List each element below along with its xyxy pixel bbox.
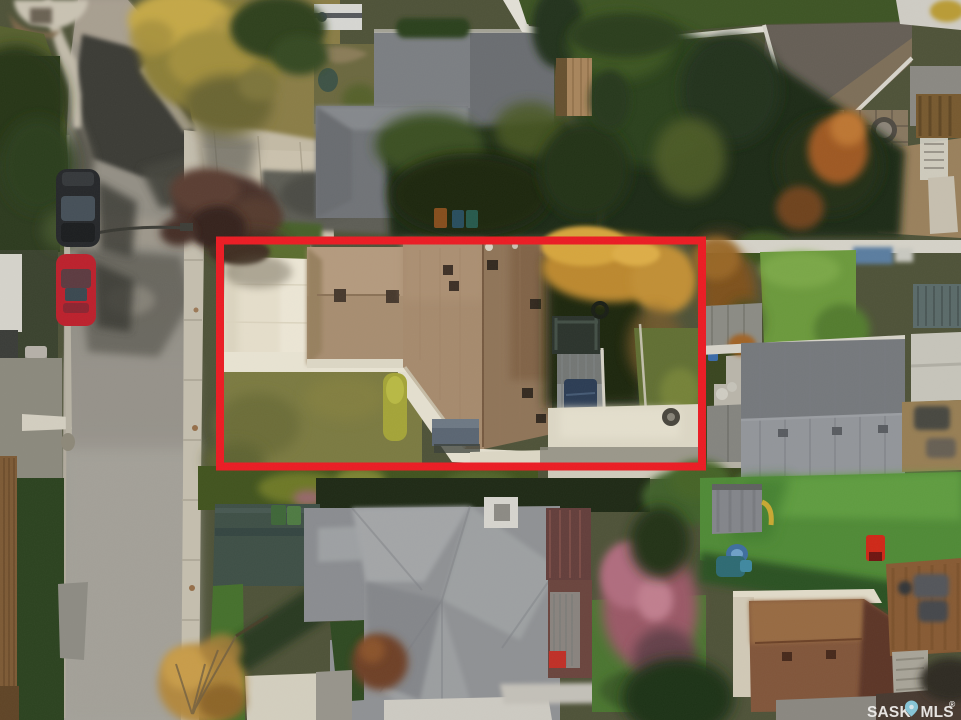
svg-text:®: ® xyxy=(949,699,956,709)
svg-text:SASK: SASK xyxy=(867,704,911,720)
